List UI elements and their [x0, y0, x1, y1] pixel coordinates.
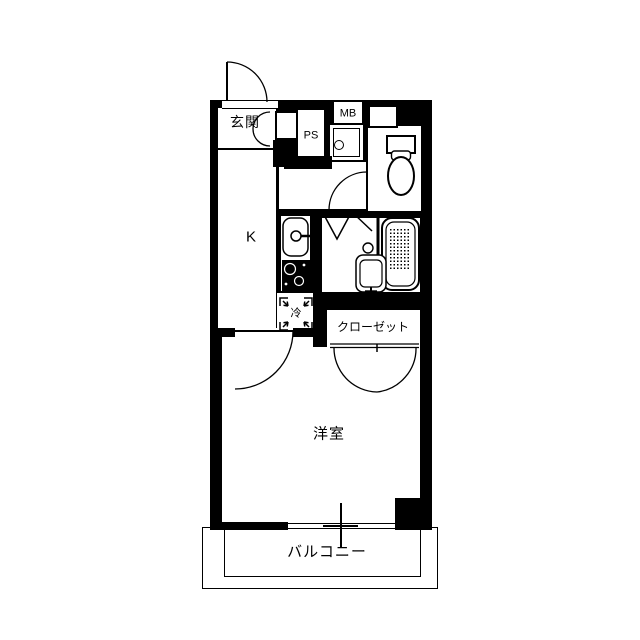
- bathtub-texture: [389, 228, 410, 271]
- western-room-label: 洋室: [313, 427, 345, 442]
- kitchen-hall-partition: [277, 164, 279, 210]
- entrance-label: 玄関: [230, 115, 260, 129]
- refrigerator-label: 冷: [291, 309, 302, 320]
- entrance-step-line: [218, 148, 276, 150]
- entrance-doorway: [222, 100, 278, 109]
- bottom-right-block: [395, 498, 432, 530]
- room-door-stub-left: [218, 328, 235, 337]
- floorplan-page: { "title": "1K apartment floor plan", "c…: [0, 0, 640, 640]
- closet-label: クローゼット: [337, 321, 409, 333]
- room-door-leaf: [235, 330, 293, 332]
- washing-machine-drain: [334, 140, 344, 150]
- balcony-label: バルコニー: [287, 545, 367, 560]
- closet-left-block: [313, 303, 327, 347]
- ps-bottom-wall: [284, 156, 332, 169]
- meter-box-label: MB: [340, 109, 357, 120]
- kitchen-label: K: [246, 230, 256, 245]
- toilet-room: [366, 126, 421, 211]
- kitchen-counter: [279, 214, 312, 293]
- window-glass-line-2: [288, 528, 398, 529]
- hallway: [279, 162, 366, 209]
- entrance-kitchen-strip: [218, 108, 276, 330]
- toilet-shelf: [368, 105, 398, 128]
- pipe-shaft-label: PS: [304, 131, 319, 142]
- room-door-stub-right: [293, 328, 315, 337]
- toilet-door-wall: [366, 126, 368, 211]
- entrance-door-swing: [227, 62, 267, 102]
- window-center-tick-h: [323, 525, 358, 527]
